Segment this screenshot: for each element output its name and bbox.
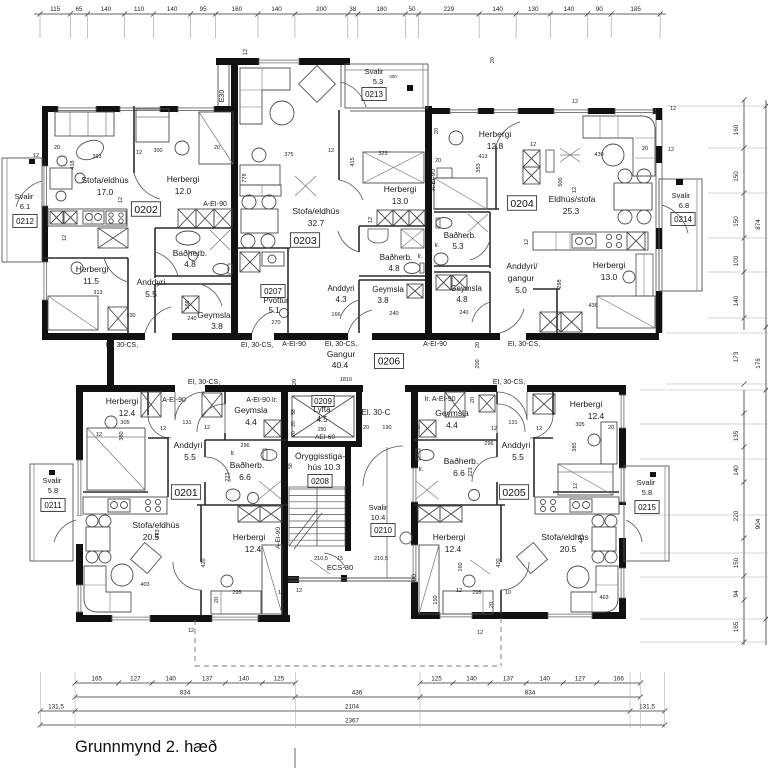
svg-text:296: 296 bbox=[240, 443, 249, 449]
svg-text:5.8: 5.8 bbox=[48, 486, 58, 495]
svg-text:12: 12 bbox=[573, 483, 579, 489]
svg-text:200: 200 bbox=[475, 359, 481, 368]
svg-text:40.4: 40.4 bbox=[332, 360, 349, 370]
svg-text:210,5: 210,5 bbox=[374, 556, 388, 562]
svg-text:Grunnmynd 2. hæð: Grunnmynd 2. hæð bbox=[75, 738, 217, 756]
svg-text:0206: 0206 bbox=[378, 357, 401, 368]
svg-text:160: 160 bbox=[733, 124, 740, 135]
svg-text:20.5: 20.5 bbox=[560, 544, 577, 554]
svg-text:Baðherb.: Baðherb. bbox=[230, 460, 265, 470]
svg-text:0215: 0215 bbox=[638, 503, 656, 512]
svg-text:EI, 30-CS,: EI, 30-CS, bbox=[188, 379, 220, 386]
svg-text:A-EI-90: A-EI-90 bbox=[162, 397, 186, 404]
svg-text:12: 12 bbox=[62, 235, 68, 241]
svg-text:140: 140 bbox=[733, 295, 740, 306]
svg-text:12.0: 12.0 bbox=[175, 186, 192, 196]
svg-text:4.3: 4.3 bbox=[335, 295, 347, 304]
svg-text:10: 10 bbox=[278, 590, 284, 596]
svg-text:Herbergi: Herbergi bbox=[106, 396, 139, 406]
svg-text:375: 375 bbox=[284, 152, 293, 158]
svg-text:110: 110 bbox=[134, 6, 145, 13]
svg-text:Svalir: Svalir bbox=[15, 192, 34, 201]
svg-text:Anddyri: Anddyri bbox=[174, 440, 203, 450]
svg-text:3.8: 3.8 bbox=[377, 296, 389, 305]
svg-text:250: 250 bbox=[318, 427, 327, 433]
svg-text:403: 403 bbox=[140, 582, 149, 588]
svg-text:140: 140 bbox=[539, 676, 550, 683]
svg-text:140: 140 bbox=[271, 6, 282, 13]
svg-text:E30: E30 bbox=[219, 90, 226, 103]
svg-text:3.8: 3.8 bbox=[211, 321, 223, 331]
svg-text:12: 12 bbox=[477, 630, 483, 636]
svg-text:13.0: 13.0 bbox=[601, 272, 618, 282]
svg-text:Ir.: Ir. bbox=[417, 254, 422, 260]
svg-text:13.0: 13.0 bbox=[392, 196, 409, 206]
svg-text:Svalir: Svalir bbox=[637, 478, 656, 487]
svg-text:hús 10.3: hús 10.3 bbox=[308, 462, 341, 472]
svg-text:295: 295 bbox=[472, 590, 481, 596]
svg-text:200: 200 bbox=[316, 6, 327, 13]
svg-text:140: 140 bbox=[466, 676, 477, 683]
svg-text:125: 125 bbox=[431, 676, 442, 683]
svg-text:A-EI-90: A-EI-90 bbox=[430, 169, 437, 191]
svg-text:Herbergi: Herbergi bbox=[167, 174, 200, 184]
svg-text:4.8: 4.8 bbox=[388, 264, 400, 273]
svg-text:Svalir: Svalir bbox=[672, 191, 691, 200]
svg-text:12.4: 12.4 bbox=[245, 544, 262, 554]
svg-text:415: 415 bbox=[350, 157, 356, 166]
svg-text:0208: 0208 bbox=[311, 477, 329, 486]
svg-text:127: 127 bbox=[575, 676, 586, 683]
svg-text:176: 176 bbox=[755, 358, 762, 369]
svg-text:20: 20 bbox=[214, 145, 220, 151]
svg-text:90: 90 bbox=[596, 6, 604, 13]
svg-text:Ir.: Ir. bbox=[230, 451, 235, 457]
svg-text:240: 240 bbox=[187, 316, 196, 322]
svg-text:0207: 0207 bbox=[264, 287, 282, 296]
svg-text:Herbergi: Herbergi bbox=[593, 260, 626, 270]
svg-text:0205: 0205 bbox=[502, 487, 526, 499]
svg-text:0213: 0213 bbox=[365, 90, 383, 99]
svg-text:Baðherb.: Baðherb. bbox=[444, 231, 476, 240]
svg-text:A-EI-90: A-EI-90 bbox=[423, 341, 447, 348]
svg-text:Anddyri/: Anddyri/ bbox=[506, 261, 538, 271]
svg-text:131,5: 131,5 bbox=[639, 704, 655, 711]
svg-text:240: 240 bbox=[459, 310, 468, 316]
svg-text:305: 305 bbox=[120, 420, 129, 426]
svg-text:Geymsla: Geymsla bbox=[197, 310, 231, 320]
svg-text:12: 12 bbox=[536, 426, 542, 432]
svg-text:140: 140 bbox=[167, 6, 178, 13]
svg-text:Stofa/eldhús: Stofa/eldhús bbox=[132, 520, 179, 530]
svg-text:12: 12 bbox=[524, 239, 530, 245]
svg-text:130: 130 bbox=[126, 313, 135, 319]
svg-text:4.5: 4.5 bbox=[316, 415, 328, 424]
svg-text:38: 38 bbox=[349, 6, 357, 13]
svg-text:17.0: 17.0 bbox=[97, 187, 114, 197]
svg-text:Herbergi: Herbergi bbox=[479, 129, 512, 139]
svg-text:165: 165 bbox=[92, 676, 103, 683]
svg-text:12.8: 12.8 bbox=[487, 141, 504, 151]
svg-text:20: 20 bbox=[414, 425, 420, 431]
svg-text:20: 20 bbox=[54, 145, 60, 151]
svg-text:223: 223 bbox=[468, 467, 474, 476]
svg-text:20: 20 bbox=[642, 146, 648, 152]
svg-text:95: 95 bbox=[200, 6, 208, 13]
svg-text:296: 296 bbox=[484, 441, 493, 447]
svg-text:6.8: 6.8 bbox=[679, 201, 689, 210]
svg-text:4.8: 4.8 bbox=[456, 295, 468, 304]
svg-text:305: 305 bbox=[575, 422, 584, 428]
svg-text:418: 418 bbox=[70, 160, 76, 169]
svg-text:Geymsla: Geymsla bbox=[435, 408, 469, 418]
svg-text:Svalir: Svalir bbox=[43, 476, 62, 485]
svg-text:Baðherb.: Baðherb. bbox=[444, 456, 479, 466]
svg-text:12: 12 bbox=[204, 425, 210, 431]
svg-text:12: 12 bbox=[572, 187, 578, 193]
svg-text:20: 20 bbox=[470, 397, 476, 403]
svg-text:2104: 2104 bbox=[345, 704, 360, 711]
svg-text:12.4: 12.4 bbox=[445, 544, 462, 554]
svg-text:131: 131 bbox=[182, 420, 191, 426]
svg-text:12: 12 bbox=[243, 49, 249, 55]
svg-text:135: 135 bbox=[733, 430, 740, 441]
svg-text:12: 12 bbox=[368, 217, 374, 223]
svg-text:834: 834 bbox=[525, 690, 536, 697]
svg-text:165: 165 bbox=[733, 621, 740, 632]
svg-text:874: 874 bbox=[755, 219, 762, 230]
svg-text:94: 94 bbox=[733, 590, 740, 598]
svg-text:A-EI-90: A-EI-90 bbox=[411, 574, 418, 596]
svg-text:127: 127 bbox=[130, 676, 141, 683]
svg-text:443: 443 bbox=[579, 534, 585, 543]
svg-text:100: 100 bbox=[733, 255, 740, 266]
svg-text:834: 834 bbox=[180, 690, 191, 697]
svg-text:12: 12 bbox=[96, 432, 102, 438]
svg-text:420: 420 bbox=[201, 558, 207, 567]
svg-text:65: 65 bbox=[75, 6, 83, 13]
svg-text:20: 20 bbox=[435, 158, 441, 164]
svg-text:778: 778 bbox=[242, 173, 248, 182]
svg-text:12: 12 bbox=[491, 426, 497, 432]
svg-text:5.1: 5.1 bbox=[268, 306, 280, 315]
svg-text:25.3: 25.3 bbox=[563, 206, 580, 216]
svg-text:300: 300 bbox=[389, 74, 397, 79]
svg-text:125: 125 bbox=[274, 676, 285, 683]
svg-text:5.3: 5.3 bbox=[452, 242, 464, 251]
svg-text:12: 12 bbox=[296, 588, 302, 594]
svg-text:5.0: 5.0 bbox=[515, 285, 527, 295]
svg-text:0204: 0204 bbox=[510, 198, 534, 210]
svg-text:Pvottur: Pvottur bbox=[263, 296, 289, 305]
svg-text:12: 12 bbox=[668, 147, 674, 153]
svg-text:12.4: 12.4 bbox=[588, 411, 605, 421]
svg-text:A-EI-90: A-EI-90 bbox=[203, 201, 227, 208]
svg-text:20: 20 bbox=[291, 421, 297, 427]
svg-text:210,5: 210,5 bbox=[314, 556, 328, 562]
svg-text:12: 12 bbox=[118, 197, 124, 203]
svg-text:115: 115 bbox=[50, 6, 61, 13]
svg-text:1810: 1810 bbox=[340, 377, 352, 383]
svg-text:Anddyri: Anddyri bbox=[137, 277, 166, 287]
svg-text:413: 413 bbox=[478, 154, 487, 160]
svg-text:Svalir: Svalir bbox=[365, 67, 384, 76]
svg-text:Eldhús/stofa: Eldhús/stofa bbox=[549, 194, 596, 204]
svg-text:223: 223 bbox=[225, 472, 231, 481]
svg-text:20: 20 bbox=[363, 425, 369, 431]
svg-text:6.1: 6.1 bbox=[20, 202, 30, 211]
svg-text:295: 295 bbox=[232, 590, 241, 596]
svg-text:5.5: 5.5 bbox=[512, 452, 524, 462]
svg-text:Baðherb.: Baðherb. bbox=[380, 253, 412, 262]
svg-text:12: 12 bbox=[188, 628, 194, 634]
svg-text:20: 20 bbox=[292, 379, 298, 385]
svg-text:58: 58 bbox=[288, 463, 294, 469]
svg-text:10.4: 10.4 bbox=[371, 513, 386, 522]
svg-text:463: 463 bbox=[599, 595, 608, 601]
svg-text:20: 20 bbox=[434, 128, 440, 134]
svg-text:Herbergi: Herbergi bbox=[433, 532, 466, 542]
svg-text:20: 20 bbox=[489, 602, 495, 608]
svg-text:EI, 30-CS,: EI, 30-CS, bbox=[508, 341, 540, 348]
svg-text:0214: 0214 bbox=[674, 215, 692, 224]
svg-text:240: 240 bbox=[389, 311, 398, 317]
svg-text:185: 185 bbox=[630, 6, 641, 13]
svg-text:140: 140 bbox=[101, 6, 112, 13]
svg-text:12: 12 bbox=[160, 426, 166, 432]
svg-text:380: 380 bbox=[119, 431, 125, 440]
svg-text:20: 20 bbox=[608, 425, 614, 431]
svg-text:AEI-60: AEI-60 bbox=[315, 434, 335, 441]
svg-text:323: 323 bbox=[378, 151, 387, 157]
svg-text:50: 50 bbox=[408, 6, 416, 13]
svg-text:130: 130 bbox=[528, 6, 539, 13]
svg-text:12: 12 bbox=[572, 99, 578, 105]
svg-text:Geymsla: Geymsla bbox=[372, 285, 404, 294]
svg-text:Öryggisstiga-: Öryggisstiga- bbox=[295, 451, 345, 461]
svg-text:137: 137 bbox=[202, 676, 213, 683]
svg-text:Ir.: Ir. bbox=[418, 467, 423, 473]
svg-text:EI, 30-CS,: EI, 30-CS, bbox=[241, 342, 273, 349]
svg-text:6.6: 6.6 bbox=[453, 468, 465, 478]
svg-text:12: 12 bbox=[530, 142, 536, 148]
svg-text:160: 160 bbox=[232, 6, 243, 13]
svg-text:58: 58 bbox=[291, 409, 297, 415]
svg-text:20: 20 bbox=[475, 342, 481, 348]
svg-text:436: 436 bbox=[588, 303, 597, 309]
svg-text:A-EI-90: A-EI-90 bbox=[275, 527, 282, 549]
svg-text:270: 270 bbox=[271, 320, 280, 326]
svg-text:12.4: 12.4 bbox=[119, 408, 136, 418]
svg-text:5.3: 5.3 bbox=[373, 77, 383, 86]
svg-text:11.5: 11.5 bbox=[83, 276, 99, 286]
svg-text:Herbergi: Herbergi bbox=[570, 399, 603, 409]
svg-text:0202: 0202 bbox=[134, 204, 158, 216]
svg-text:A-EI-90: A-EI-90 bbox=[282, 341, 306, 348]
svg-text:140: 140 bbox=[564, 6, 575, 13]
svg-text:904: 904 bbox=[755, 518, 762, 529]
svg-text:0201: 0201 bbox=[174, 487, 198, 499]
svg-text:EI, 30-CS,: EI, 30-CS, bbox=[106, 342, 138, 349]
svg-text:Herbergi: Herbergi bbox=[233, 532, 266, 542]
svg-text:10: 10 bbox=[505, 590, 511, 596]
svg-text:150: 150 bbox=[733, 216, 740, 227]
svg-text:150: 150 bbox=[433, 595, 439, 604]
svg-text:ECS-30: ECS-30 bbox=[327, 563, 353, 572]
svg-text:385: 385 bbox=[572, 442, 578, 451]
svg-text:353: 353 bbox=[476, 163, 482, 172]
svg-text:6.6: 6.6 bbox=[239, 472, 251, 482]
svg-text:12: 12 bbox=[670, 106, 676, 112]
svg-text:313: 313 bbox=[93, 290, 102, 296]
svg-text:20: 20 bbox=[291, 431, 297, 437]
svg-text:137: 137 bbox=[503, 676, 514, 683]
svg-text:150: 150 bbox=[733, 557, 740, 568]
svg-text:0203: 0203 bbox=[293, 235, 317, 247]
svg-text:4.4: 4.4 bbox=[446, 420, 458, 430]
svg-text:32.7: 32.7 bbox=[308, 218, 325, 228]
svg-text:5.8: 5.8 bbox=[642, 488, 652, 497]
svg-text:190: 190 bbox=[382, 425, 391, 431]
svg-text:430: 430 bbox=[594, 152, 603, 158]
svg-text:500: 500 bbox=[558, 177, 564, 186]
svg-text:12: 12 bbox=[136, 150, 142, 156]
svg-text:El. 30-C: El. 30-C bbox=[362, 408, 391, 417]
svg-text:300: 300 bbox=[153, 148, 162, 154]
svg-text:173: 173 bbox=[733, 351, 740, 362]
svg-text:140: 140 bbox=[733, 465, 740, 476]
svg-text:gangur: gangur bbox=[508, 273, 535, 283]
svg-text:166: 166 bbox=[331, 312, 340, 318]
svg-text:420: 420 bbox=[496, 558, 502, 567]
svg-text:20: 20 bbox=[214, 597, 220, 603]
svg-text:Geymsla: Geymsla bbox=[234, 405, 268, 415]
svg-text:Svalir: Svalir bbox=[369, 503, 388, 512]
svg-text:298: 298 bbox=[557, 279, 563, 288]
svg-text:166: 166 bbox=[185, 300, 191, 309]
svg-text:160: 160 bbox=[458, 562, 464, 571]
svg-text:0210: 0210 bbox=[374, 526, 392, 535]
svg-text:20: 20 bbox=[490, 57, 496, 63]
svg-text:229: 229 bbox=[444, 6, 455, 13]
svg-text:131: 131 bbox=[508, 420, 517, 426]
svg-text:0211: 0211 bbox=[44, 501, 62, 510]
svg-text:140: 140 bbox=[165, 676, 176, 683]
svg-text:2367: 2367 bbox=[345, 718, 360, 725]
svg-text:Herbergi: Herbergi bbox=[384, 184, 417, 194]
svg-text:140: 140 bbox=[492, 6, 503, 13]
svg-text:EI, 30-CS,: EI, 30-CS, bbox=[493, 379, 525, 386]
svg-text:Gangur: Gangur bbox=[327, 349, 356, 359]
svg-text:4.4: 4.4 bbox=[245, 417, 257, 427]
svg-text:Stofa/eldhús: Stofa/eldhús bbox=[292, 206, 339, 216]
svg-text:EI, 30-CS,: EI, 30-CS, bbox=[325, 341, 357, 348]
svg-text:0212: 0212 bbox=[16, 217, 34, 226]
svg-text:393: 393 bbox=[92, 154, 101, 160]
svg-text:166: 166 bbox=[613, 676, 624, 683]
svg-text:443: 443 bbox=[155, 529, 161, 538]
svg-text:A-EI-90 Ir.: A-EI-90 Ir. bbox=[246, 397, 278, 404]
svg-text:180: 180 bbox=[376, 6, 387, 13]
svg-text:Geymsla: Geymsla bbox=[450, 284, 482, 293]
svg-text:436: 436 bbox=[352, 690, 363, 697]
svg-text:150: 150 bbox=[733, 171, 740, 182]
svg-text:Ir.: Ir. bbox=[434, 243, 439, 249]
svg-text:Anddyri: Anddyri bbox=[502, 440, 531, 450]
svg-text:5.5: 5.5 bbox=[184, 452, 196, 462]
svg-text:12: 12 bbox=[328, 148, 334, 154]
svg-text:Anddyri: Anddyri bbox=[327, 284, 354, 293]
svg-text:220: 220 bbox=[733, 510, 740, 521]
svg-text:131,5: 131,5 bbox=[48, 704, 64, 711]
svg-text:Stofa/eldhús: Stofa/eldhús bbox=[81, 175, 128, 185]
svg-text:12: 12 bbox=[33, 153, 39, 159]
svg-text:12: 12 bbox=[456, 588, 462, 594]
svg-text:Lyfta: Lyfta bbox=[313, 405, 331, 414]
svg-text:140: 140 bbox=[239, 676, 250, 683]
